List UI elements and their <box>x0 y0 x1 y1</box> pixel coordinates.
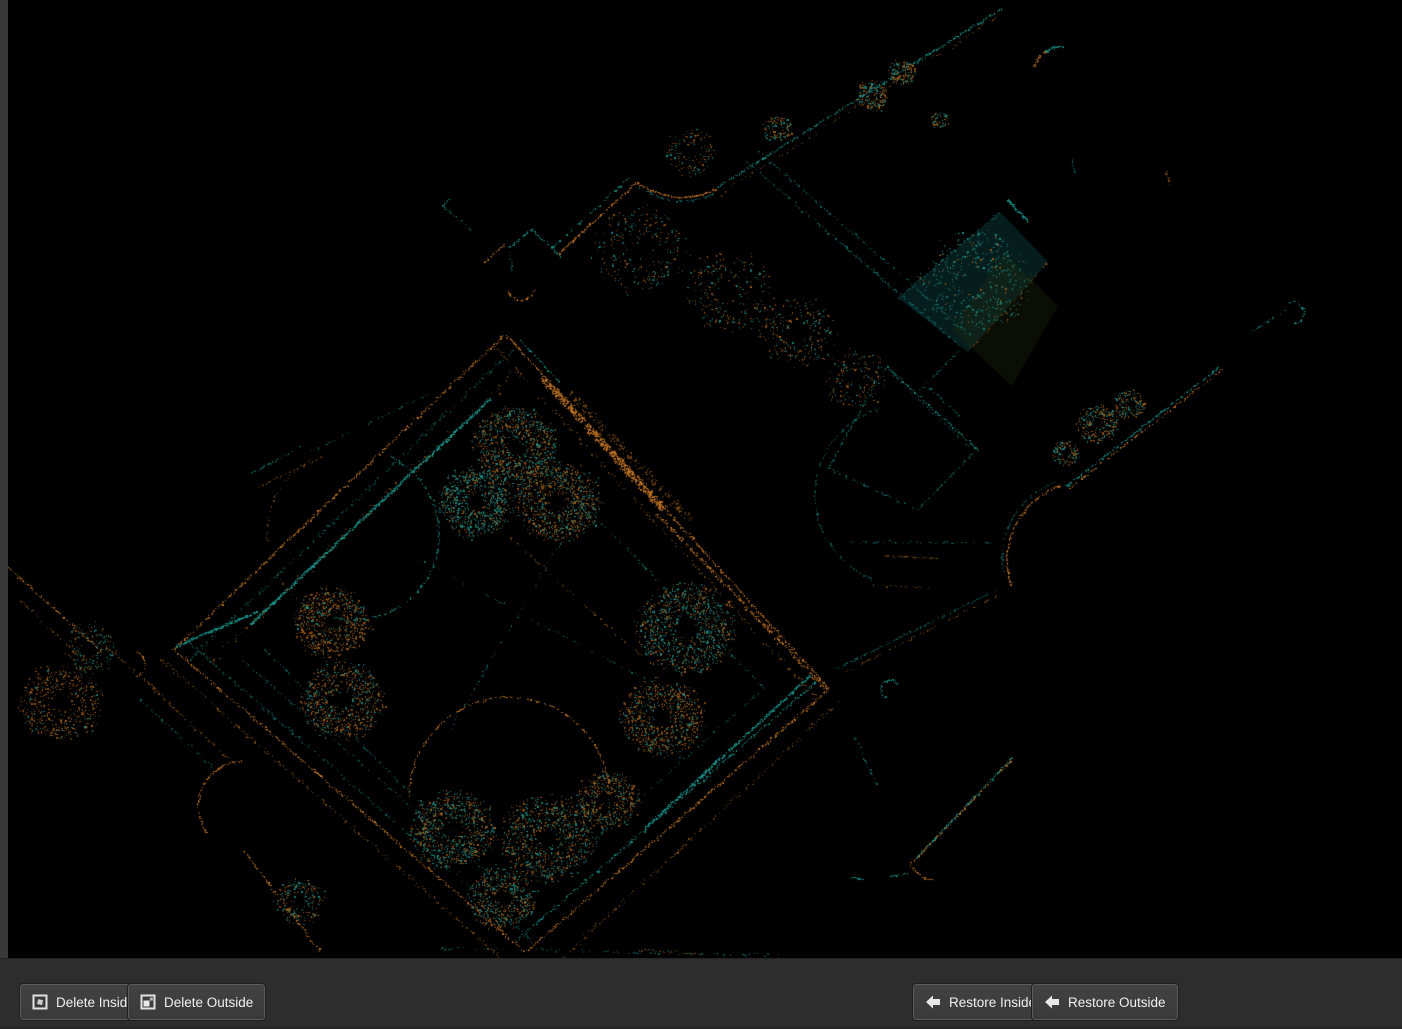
segment-delete-outside-icon <box>140 994 156 1010</box>
segment-delete-inside-icon <box>32 994 48 1010</box>
window-edge <box>0 0 8 958</box>
restore-inside-button[interactable]: Restore Inside <box>913 984 1048 1020</box>
arrow-left-icon <box>1044 994 1060 1010</box>
arrow-left-icon <box>925 994 941 1010</box>
point-cloud-editor-window: Delete Inside Delete Outside Restore Ins… <box>0 0 1402 1029</box>
point-cloud-viewport[interactable] <box>0 0 1402 958</box>
restore-outside-button[interactable]: Restore Outside <box>1032 984 1178 1020</box>
delete-inside-label: Delete Inside <box>56 995 135 1010</box>
restore-outside-label: Restore Outside <box>1068 995 1166 1010</box>
segmentation-toolbar: Delete Inside Delete Outside Restore Ins… <box>0 958 1402 1029</box>
delete-outside-label: Delete Outside <box>164 995 253 1010</box>
restore-inside-label: Restore Inside <box>949 995 1036 1010</box>
delete-outside-button[interactable]: Delete Outside <box>128 984 265 1020</box>
